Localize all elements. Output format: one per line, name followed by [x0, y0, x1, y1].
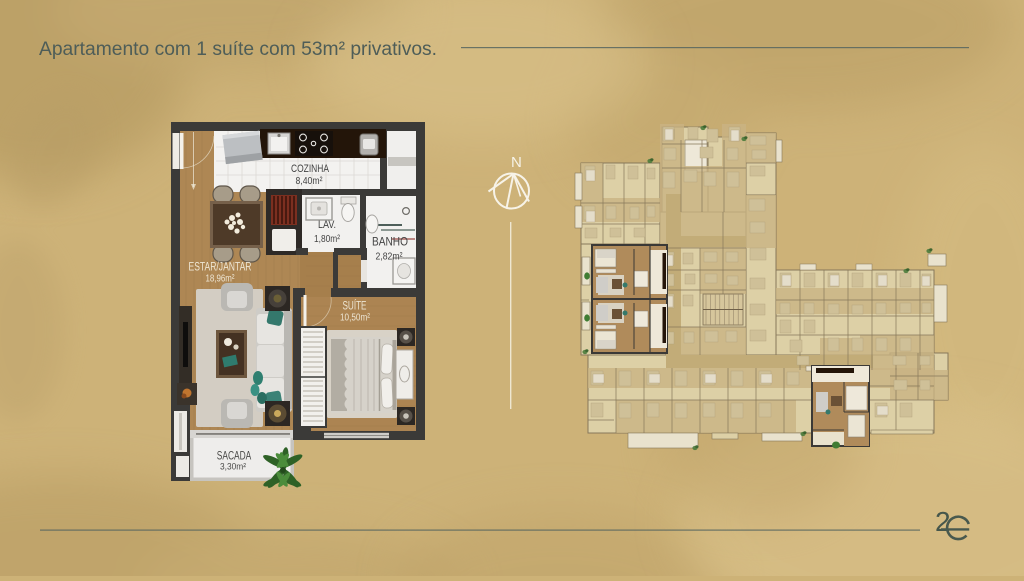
svg-text:ESTAR/JANTAR: ESTAR/JANTAR	[189, 260, 252, 274]
svg-text:BANHO: BANHO	[372, 237, 408, 249]
svg-text:COZINHA: COZINHA	[291, 163, 329, 175]
svg-text:2,82m²: 2,82m²	[376, 252, 404, 263]
svg-text:10,50m²: 10,50m²	[340, 313, 371, 324]
svg-text:Apartamento com 1 suíte com 53: Apartamento com 1 suíte com 53m² privati…	[39, 39, 437, 60]
svg-text:SACADA: SACADA	[217, 449, 252, 463]
svg-text:N: N	[511, 154, 522, 171]
svg-text:3,30m²: 3,30m²	[220, 462, 246, 473]
svg-text:SUÍTE: SUÍTE	[343, 298, 367, 313]
svg-text:1,80m²: 1,80m²	[314, 234, 341, 245]
svg-text:18,96m²: 18,96m²	[206, 274, 236, 285]
svg-text:8,40m²: 8,40m²	[296, 176, 324, 187]
svg-text:LAV.: LAV.	[318, 219, 336, 231]
